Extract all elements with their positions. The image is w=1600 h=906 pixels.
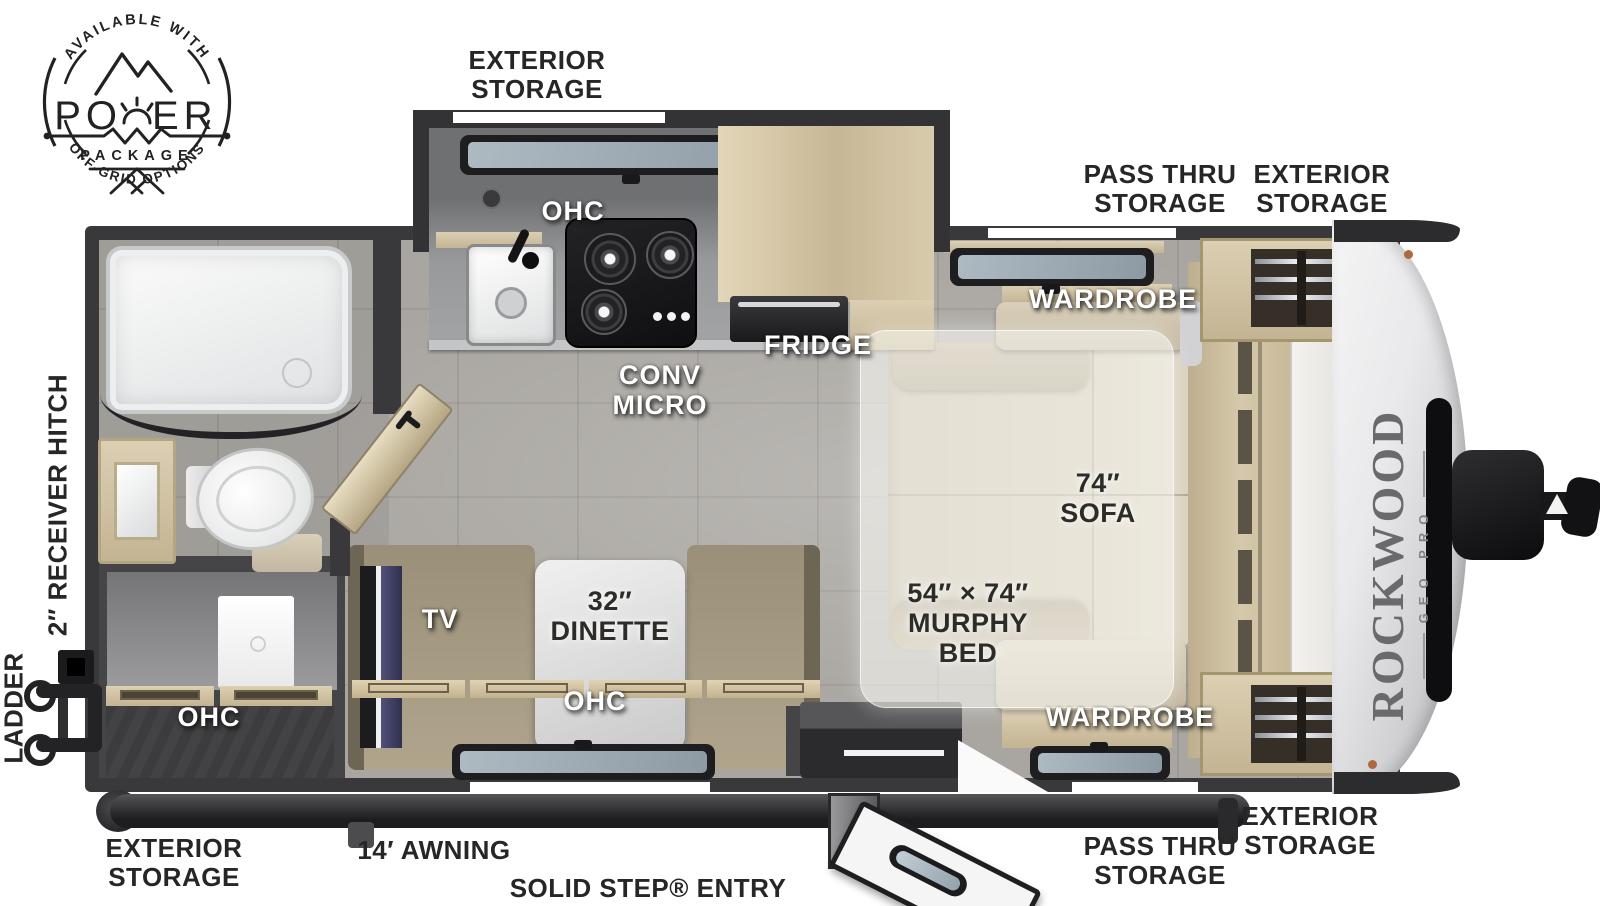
ladder-side-rail	[88, 684, 102, 752]
label-line: 54″ × 74″	[907, 578, 1028, 608]
power-package-badge: AVAILABLE WITH OFF-GRID OPTIONS PO ER PA…	[34, 2, 240, 202]
vanity-mirror	[114, 462, 160, 540]
dinette-window-latch	[574, 740, 592, 750]
bathtub	[106, 246, 352, 414]
receiver-hitch-tube	[58, 650, 94, 684]
brand-model: GEO PRO	[1416, 507, 1431, 624]
fridge-cabinet	[718, 126, 934, 302]
callout-line: STORAGE	[1254, 189, 1391, 218]
callout-line: EXTERIOR	[1254, 160, 1391, 189]
label-line: SOFA	[1060, 498, 1136, 528]
sofa-window	[950, 248, 1154, 286]
callout-line: STORAGE	[1084, 861, 1237, 890]
propane-cover	[1452, 450, 1544, 560]
callout-line: EXTERIOR	[469, 46, 606, 75]
front-cap-roofline-top	[1334, 220, 1460, 242]
label-dinette: 32″ DINETTE	[550, 586, 669, 646]
tv-screen	[381, 566, 402, 748]
callout-line: STORAGE	[469, 75, 606, 104]
label-line: DINETTE	[550, 616, 669, 646]
label-wardrobe-door-side: WARDROBE	[1046, 702, 1215, 732]
callout-line: EXTERIOR	[106, 834, 243, 863]
label-ohc-kitchen: OHC	[542, 196, 605, 226]
brand-flourish-right	[1423, 451, 1425, 497]
callout-ladder: LADDER	[0, 652, 29, 763]
callout-line: PASS THRU	[1084, 160, 1237, 189]
sink-faucet-base	[522, 252, 539, 269]
label-line: MURPHY	[907, 608, 1028, 638]
label-line: 74″	[1060, 468, 1136, 498]
cap-rivet-bottom	[1368, 760, 1377, 769]
badge-arc-top-text: AVAILABLE WITH	[61, 12, 213, 63]
callout-exterior-storage-rear: EXTERIOR STORAGE	[106, 834, 243, 892]
hitch-chevron	[1546, 494, 1568, 514]
door-side-window-latch	[1090, 742, 1108, 752]
entry-side-panel	[786, 706, 800, 776]
callout-line: EXTERIOR	[1242, 802, 1379, 831]
kitchen-window-latch	[622, 174, 640, 184]
soap-dispenser	[481, 188, 502, 209]
label-ohc-dinette: OHC	[564, 686, 627, 716]
slideout-left-wall	[413, 110, 429, 252]
label-line: 32″	[550, 586, 669, 616]
label-fridge: FRIDGE	[764, 330, 872, 360]
label-murphy-bed: 54″ × 74″ MURPHY BED	[907, 578, 1028, 669]
front-cap-branding: ROCKWOOD GEO PRO	[1351, 385, 1441, 745]
label-line: CONV	[613, 360, 708, 390]
label-line: MICRO	[613, 390, 708, 420]
dinette-window-stripe	[470, 782, 710, 792]
cap-rivet-top	[1404, 250, 1413, 259]
badge-package-text: PACKAGE	[80, 148, 193, 164]
tub-drain	[282, 358, 312, 388]
slideout-right-wall	[934, 110, 950, 252]
label-ohc-rear: OHC	[178, 702, 241, 732]
slideout-exterior-window-stripe	[453, 112, 665, 123]
callout-exterior-storage-front: EXTERIOR STORAGE	[1242, 802, 1379, 860]
brand-flourish-left	[1423, 633, 1425, 679]
callout-awning: 14′ AWNING	[357, 836, 510, 865]
front-cap-roofline-bottom	[1334, 772, 1460, 794]
callout-exterior-storage-top-right: EXTERIOR STORAGE	[1254, 160, 1391, 218]
callout-line: STORAGE	[1242, 831, 1379, 860]
label-tv: TV	[422, 604, 459, 634]
water-heater-panel	[218, 596, 294, 688]
mountains-icon	[96, 54, 171, 94]
front-wall-window-stripe	[988, 228, 1176, 238]
tv-mount	[360, 566, 376, 748]
door-side-window-stripe	[1072, 782, 1198, 792]
brand-model-row: GEO PRO	[1416, 451, 1431, 680]
sun-icon	[122, 98, 152, 123]
label-line: BED	[907, 638, 1028, 668]
label-wardrobe-front: WARDROBE	[1029, 284, 1198, 314]
label-sofa: 74″ SOFA	[1060, 468, 1136, 528]
brand-make: ROCKWOOD	[1361, 409, 1414, 722]
callout-line: PASS THRU	[1084, 832, 1237, 861]
label-conv-micro: CONV MICRO	[613, 360, 708, 420]
cooktop	[565, 218, 697, 348]
callout-pass-thru-top: PASS THRU STORAGE	[1084, 160, 1237, 218]
callout-line: STORAGE	[106, 863, 243, 892]
callout-pass-thru-bottom: PASS THRU STORAGE	[1084, 832, 1237, 890]
entry-cabinet	[800, 702, 962, 778]
awning-roll	[110, 794, 1250, 828]
callout-line: STORAGE	[1084, 189, 1237, 218]
callout-exterior-storage-top: EXTERIOR STORAGE	[469, 46, 606, 104]
bathroom-wall	[373, 240, 401, 414]
callout-receiver-hitch: 2″ RECEIVER HITCH	[43, 374, 72, 636]
callout-solid-step-entry: SOLID STEP® ENTRY	[510, 874, 787, 903]
floorplan-canvas: AVAILABLE WITH OFF-GRID OPTIONS PO ER PA…	[0, 0, 1600, 906]
